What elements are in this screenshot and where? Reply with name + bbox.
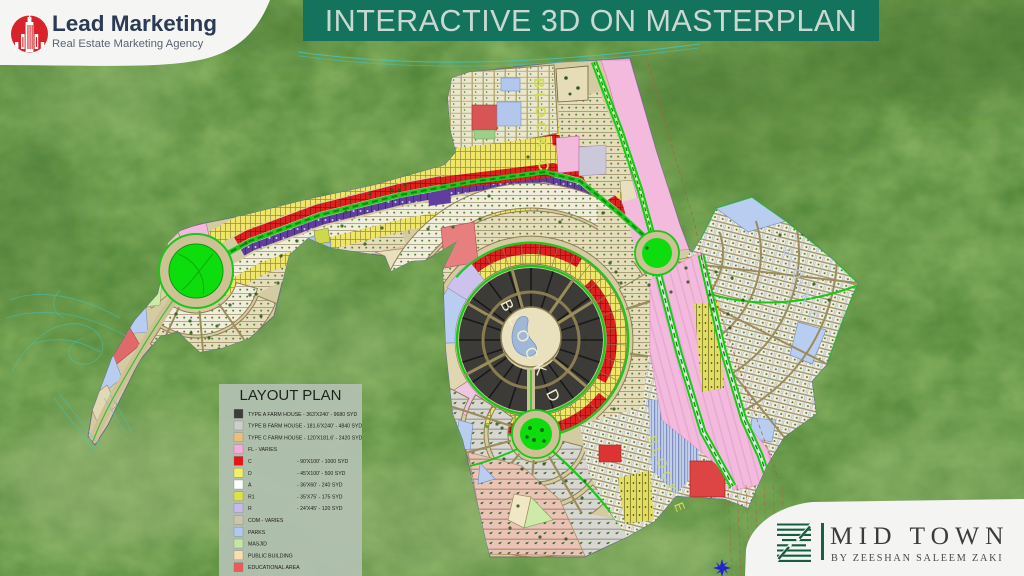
- svg-text:TYPE B FARM HOUSE - 181.6'X240: TYPE B FARM HOUSE - 181.6'X240' - 4840 S…: [248, 424, 362, 430]
- svg-text:- 90'X100' - 1000 SYD: - 90'X100' - 1000 SYD: [297, 459, 349, 465]
- svg-text:TYPE C FARM HOUSE - 120'X181.6: TYPE C FARM HOUSE - 120'X181.6' - 2420 S…: [248, 435, 362, 441]
- svg-text:A: A: [248, 483, 252, 489]
- svg-text:TYPE A FARM HOUSE - 363'X240': TYPE A FARM HOUSE - 363'X240' - 9680 SYD: [248, 412, 357, 418]
- svg-text:COM - VARIES: COM - VARIES: [248, 518, 284, 524]
- svg-text:MASJID: MASJID: [248, 542, 267, 548]
- svg-text:EDUCATIONAL AREA: EDUCATIONAL AREA: [248, 565, 300, 571]
- svg-text:BY ZEESHAN SALEEM ZAKI: BY ZEESHAN SALEEM ZAKI: [831, 553, 1004, 564]
- svg-text:- 45'X100' - 500 SYD: - 45'X100' - 500 SYD: [297, 471, 346, 477]
- svg-text:R1: R1: [248, 494, 255, 500]
- svg-text:PUBLIC BUILDING: PUBLIC BUILDING: [248, 553, 293, 559]
- svg-text:MID TOWN: MID TOWN: [830, 521, 1010, 550]
- svg-text:PARKS: PARKS: [248, 530, 266, 536]
- svg-text:- 35'X75' - 175 SYD: - 35'X75' - 175 SYD: [297, 494, 343, 500]
- svg-text:- 24'X45' - 120 SYD: - 24'X45' - 120 SYD: [297, 506, 343, 512]
- svg-text:- 36'X60' - 240 SYD: - 36'X60' - 240 SYD: [297, 483, 343, 489]
- svg-text:FL - VARIES: FL - VARIES: [248, 447, 278, 453]
- svg-text:D: D: [248, 471, 252, 477]
- svg-text:R: R: [248, 506, 252, 512]
- svg-text:C: C: [248, 459, 252, 465]
